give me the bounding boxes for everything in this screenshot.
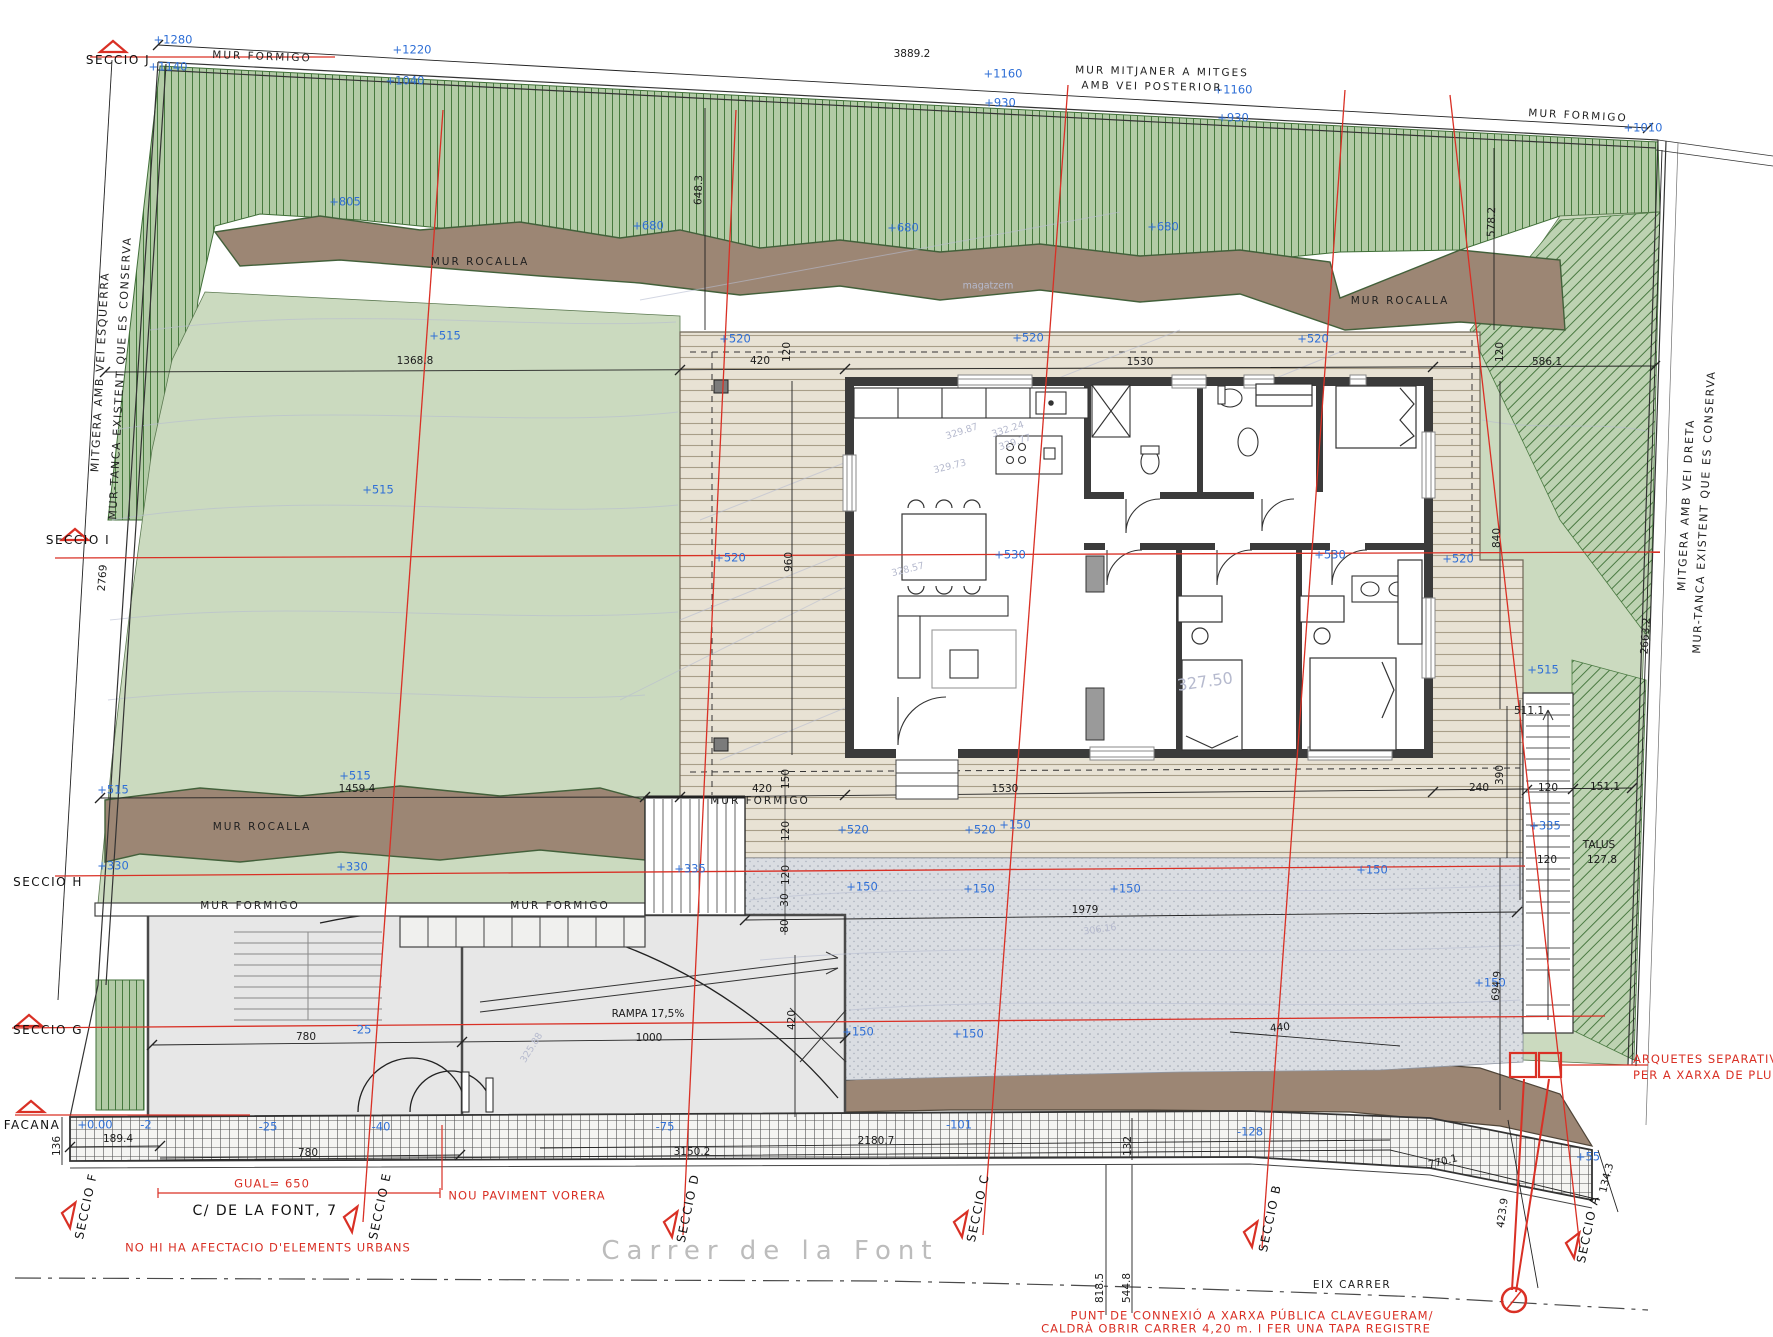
exterior-stairs-right <box>1523 693 1573 1033</box>
street-axis-centerline <box>15 1278 1648 1310</box>
site-plan-canvas <box>0 0 1773 1337</box>
shaft <box>1086 556 1104 592</box>
shaft <box>1086 688 1104 740</box>
dining-table <box>902 500 986 594</box>
gravel-area <box>745 858 1523 1080</box>
site-plan: Carrer de la Font C/ DE LA FONT, 7 EIX C… <box>0 0 1773 1337</box>
sofa <box>898 596 1016 688</box>
exterior-stairs-mid <box>645 797 745 915</box>
gual-dimension <box>158 1188 440 1198</box>
entry-steps <box>896 760 958 799</box>
house <box>843 375 1435 799</box>
